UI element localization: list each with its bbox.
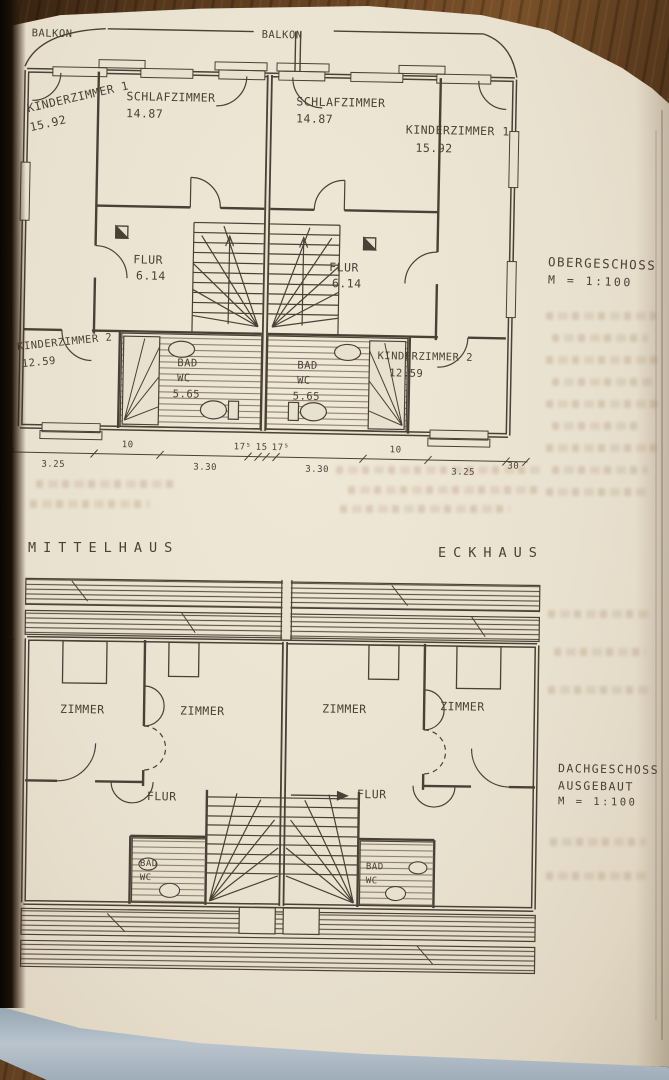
bleed-through-text xyxy=(30,500,150,508)
bleed-through-text xyxy=(552,334,648,342)
dashed-opening-arc xyxy=(423,730,446,774)
bathroom-right xyxy=(359,841,434,906)
bathroom-left xyxy=(120,333,262,429)
plan-scale-dachgeschoss: M = 1:100 xyxy=(558,795,638,808)
dimension-label: 17⁵ xyxy=(272,443,290,453)
room-label-bad-right: BAD xyxy=(297,359,318,371)
bathtub-icon xyxy=(122,336,160,425)
section-label-eckhaus: ECKHAUS xyxy=(438,545,544,561)
toilet-icon xyxy=(385,886,405,900)
room-label-flur-left: FLUR xyxy=(133,252,163,267)
dimension-label: 17⁵ xyxy=(234,442,252,452)
page-edge-crease xyxy=(661,110,663,1040)
area-label: 5.65 xyxy=(293,390,321,403)
dimension-labels: 5 3.25 10 3.30 17⁵ 15 17⁵ 3.30 10 3.25 3… xyxy=(7,437,519,479)
roof-hatch-top xyxy=(25,576,540,643)
area-label: 12.59 xyxy=(389,367,423,380)
dimension-label: 3.25 xyxy=(451,467,475,477)
plan-title-obergeschoss: OBERGESCHOSS xyxy=(548,254,657,273)
room-label-zimmer: ZIMMER xyxy=(322,701,367,716)
balkon-label-right: BALKON xyxy=(262,29,303,42)
bleed-through-text xyxy=(550,838,646,846)
room-label-bad: BAD xyxy=(366,862,384,872)
flur-direction-arrow xyxy=(291,790,349,801)
dimension-label: 5 xyxy=(8,437,13,446)
room-label-zimmer: ZIMMER xyxy=(180,704,225,719)
entry-box xyxy=(239,907,275,934)
staircase-left xyxy=(192,222,264,333)
bleed-through-text xyxy=(546,400,658,408)
bleed-through-text xyxy=(546,488,650,496)
area-label: 15.92 xyxy=(415,141,452,156)
staircase-right xyxy=(268,224,340,335)
room-label-bad: BAD xyxy=(140,859,158,869)
dimension-line xyxy=(7,448,530,466)
lower-floor-plan-drawing: ZIMMER ZIMMER FLUR BAD WC ZIMMER ZIMMER … xyxy=(0,572,544,988)
room-label-wc-left: WC xyxy=(177,372,191,384)
area-label: 15.92 xyxy=(28,112,67,134)
plan-title-ausgebaut: AUSGEBAUT xyxy=(558,778,634,793)
bleed-through-text xyxy=(552,378,652,386)
room-label-zimmer: ZIMMER xyxy=(440,699,485,714)
dimension-label: 10 xyxy=(122,440,134,450)
room-label-wc: WC xyxy=(140,873,152,883)
toilet-icon xyxy=(159,883,179,897)
room-label-wc-right: WC xyxy=(297,374,311,386)
area-label: 14.87 xyxy=(126,106,163,121)
dimension-label: 10 xyxy=(390,445,402,455)
sink-icon xyxy=(334,344,360,360)
room-label-kinderzimmer1-right: KINDERZIMMER 1 xyxy=(406,123,510,139)
staircase-right xyxy=(281,794,359,903)
dimension-label: 30 xyxy=(507,462,519,472)
sink-icon xyxy=(168,341,194,357)
toilet-icon xyxy=(200,401,226,419)
toilet-icon xyxy=(300,403,326,421)
dashed-opening-arc xyxy=(143,726,166,770)
sink-icon xyxy=(409,862,427,874)
room-label-zimmer: ZIMMER xyxy=(60,702,105,717)
room-label-wc: WC xyxy=(366,876,378,886)
upper-floor-plan-drawing: BALKON BALKON xyxy=(7,14,550,490)
flue-symbol xyxy=(116,226,376,250)
dimension-label: 3.30 xyxy=(305,465,329,475)
document-page: BALKON BALKON xyxy=(0,0,669,1080)
room-label-schlafzimmer-right: SCHLAFZIMMER xyxy=(296,94,385,110)
bathroom-left xyxy=(131,838,206,903)
room-label-flur-right: FLUR xyxy=(329,260,359,275)
roof-hatch-bottom xyxy=(20,904,535,973)
room-label-bad-left: BAD xyxy=(177,357,198,369)
room-label-flur: FLUR xyxy=(357,787,387,801)
dimension-label: 15 xyxy=(256,443,268,453)
dimension-label: 3.25 xyxy=(41,460,65,470)
bleed-through-text xyxy=(548,686,648,694)
plan-scale-obergeschoss: M = 1:100 xyxy=(548,273,633,290)
area-label: 12.59 xyxy=(21,355,56,370)
staircase-left xyxy=(205,793,283,902)
bleed-through-text xyxy=(552,422,640,430)
balkon-label-left: BALKON xyxy=(32,27,73,40)
area-label: 5.65 xyxy=(173,388,201,401)
bleed-through-text xyxy=(554,648,646,656)
outer-walls xyxy=(23,638,537,909)
section-label-mittelhaus: MITTELHAUS xyxy=(28,540,179,556)
area-label: 14.87 xyxy=(296,111,333,126)
bleed-through-text xyxy=(546,444,656,452)
room-label-schlafzimmer-left: SCHLAFZIMMER xyxy=(126,89,215,105)
area-label: 6.14 xyxy=(332,276,362,291)
room-label-kinderzimmer2-right: KINDERZIMMER 2 xyxy=(377,350,473,364)
bleed-through-text xyxy=(546,356,658,364)
room-label-kinderzimmer2-left: KINDERZIMMER 2 xyxy=(17,331,113,353)
side-dimension-line xyxy=(1,639,14,905)
bleed-through-text xyxy=(552,466,648,474)
bleed-through-text xyxy=(548,610,652,618)
bleed-through-text xyxy=(340,505,510,513)
room-label-flur: FLUR xyxy=(147,789,177,803)
dimension-label: 3.30 xyxy=(193,462,217,472)
bleed-through-text xyxy=(546,872,650,880)
area-label: 6.14 xyxy=(136,268,166,283)
plan-title-dachgeschoss: DACHGESCHOSS xyxy=(558,761,659,777)
bleed-through-text xyxy=(546,312,656,320)
room-label-kinderzimmer1-left: KINDERZIMMER 1 xyxy=(26,78,130,115)
entry-box xyxy=(283,908,319,935)
